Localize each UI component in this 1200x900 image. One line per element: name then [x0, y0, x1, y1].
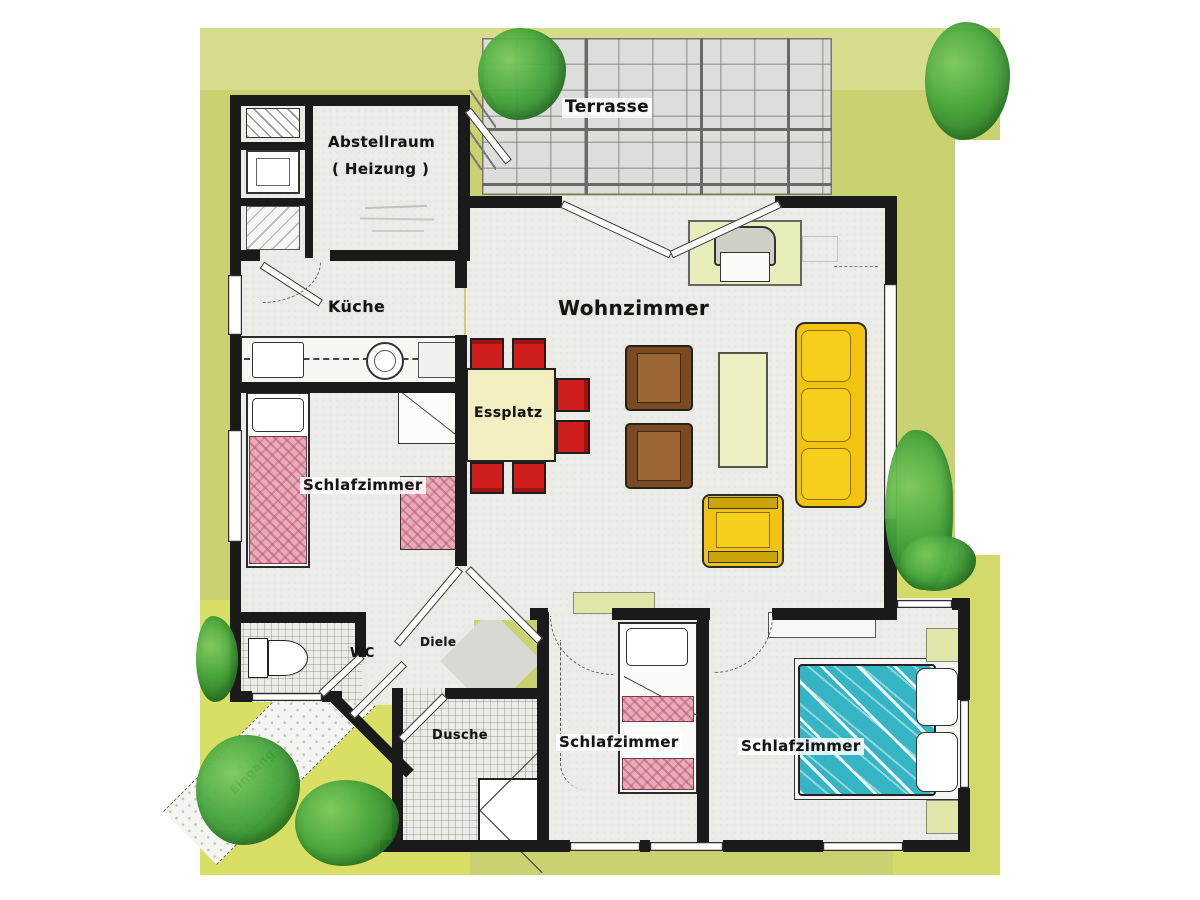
- utility-shelf: [246, 108, 300, 138]
- window: [650, 842, 723, 851]
- coffee-table: [718, 352, 768, 468]
- dusche-label: Dusche: [432, 728, 488, 743]
- schlafzimmer-left-label: Schlafzimmer: [300, 477, 426, 494]
- wall-segment: [458, 95, 470, 258]
- wall-segment: [230, 542, 241, 622]
- sofa-cushion: [801, 388, 851, 442]
- diele-label: Diele: [420, 635, 456, 649]
- wall-segment: [772, 608, 886, 620]
- terrace-line: [482, 183, 832, 186]
- dryer: [246, 206, 300, 250]
- wc-label: WC: [350, 646, 375, 661]
- kueche-label: Küche: [328, 297, 385, 316]
- abstellraum-label-2: ( Heizung ): [332, 160, 429, 178]
- armchair-yellow-arm: [708, 551, 778, 563]
- wall-segment: [466, 196, 562, 208]
- wohnzimmer-label: Wohnzimmer: [558, 296, 709, 320]
- wall-segment: [455, 258, 467, 288]
- window: [228, 275, 242, 335]
- wall-segment: [230, 612, 366, 623]
- wall-segment: [230, 382, 466, 393]
- terrace-line: [787, 38, 790, 195]
- armchair-yellow-arm: [708, 497, 778, 509]
- wall-segment: [530, 608, 548, 620]
- sofa-cushion: [801, 330, 851, 382]
- blanket-pink: [622, 758, 694, 790]
- wall-segment: [230, 250, 260, 261]
- wall-segment: [455, 335, 467, 555]
- faint-note: [372, 230, 424, 232]
- alcove-dash: [834, 266, 878, 267]
- wall-segment: [903, 840, 970, 852]
- toilet-tank: [248, 638, 268, 678]
- window: [897, 600, 952, 608]
- wall-segment: [958, 598, 970, 700]
- wall-segment: [537, 612, 549, 848]
- terrace-label: Terrasse: [562, 98, 652, 118]
- wall-segment: [775, 196, 897, 208]
- sofa-cushion: [801, 448, 851, 500]
- shower-cabin: [478, 778, 542, 842]
- floorplan-canvas: Eingang: [0, 0, 1200, 900]
- schlafzimmer-right-label: Schlafzimmer: [738, 738, 864, 755]
- armchair-yellow-seat: [716, 512, 770, 548]
- sink-basin: [374, 350, 396, 372]
- armchair-brown-seat: [637, 431, 681, 481]
- wall-segment: [230, 691, 252, 702]
- dining-chair: [556, 378, 590, 412]
- terrace-line: [482, 128, 832, 131]
- abstellraum-label: Abstellraum: [328, 133, 435, 151]
- bedside-mat: [926, 800, 960, 834]
- white-cutout: [955, 140, 1000, 555]
- wall-segment: [230, 95, 470, 106]
- pillow: [252, 398, 304, 432]
- wall-segment: [330, 250, 470, 261]
- alcove-sketch: [802, 236, 838, 262]
- window: [960, 700, 969, 788]
- wall-segment: [640, 840, 650, 852]
- washing-machine-door: [256, 158, 290, 186]
- window: [228, 430, 242, 542]
- dining-chair: [556, 420, 590, 454]
- essplatz-label: Essplatz: [474, 405, 543, 421]
- pillow: [626, 628, 688, 666]
- wall-segment: [230, 393, 241, 430]
- wall-segment: [885, 196, 897, 284]
- stove: [252, 342, 304, 378]
- terrace-line: [700, 38, 703, 195]
- wall-segment: [697, 612, 709, 848]
- pillow: [916, 732, 958, 792]
- wall-segment: [884, 598, 897, 620]
- wall-segment: [445, 688, 545, 699]
- pillow: [916, 668, 958, 726]
- wall-segment: [230, 95, 241, 275]
- wall-segment: [236, 198, 306, 206]
- dining-chair: [512, 462, 546, 494]
- wall-segment: [612, 608, 710, 620]
- window: [252, 693, 322, 701]
- kitchen-appliance: [418, 342, 456, 378]
- wall-segment: [305, 106, 313, 258]
- armchair-brown-seat: [637, 353, 681, 403]
- bedside-mat: [926, 628, 960, 662]
- window: [570, 842, 640, 851]
- dining-chair: [470, 338, 504, 370]
- schlafzimmer-mid-label: Schlafzimmer: [556, 734, 682, 751]
- wall-segment: [723, 840, 823, 852]
- wall-segment: [380, 840, 570, 852]
- window: [823, 842, 903, 851]
- blanket-pink: [622, 696, 694, 722]
- wall-segment: [455, 552, 467, 566]
- dining-chair: [512, 338, 546, 370]
- tv-screen: [720, 252, 770, 282]
- dining-chair: [470, 462, 504, 494]
- wall-segment: [236, 142, 306, 150]
- blanket-pink: [249, 436, 307, 564]
